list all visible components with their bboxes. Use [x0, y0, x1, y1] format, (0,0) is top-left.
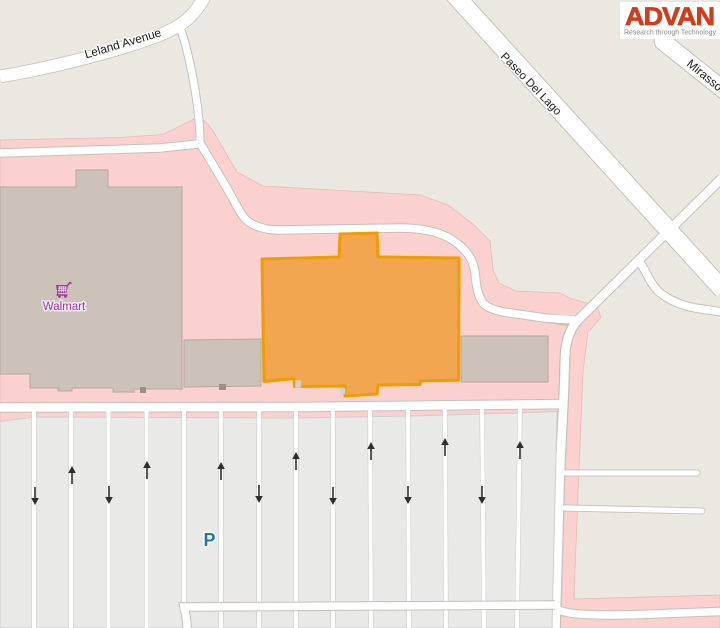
svg-text:Walmart: Walmart: [43, 301, 86, 313]
svg-text:P: P: [204, 530, 216, 550]
svg-text:Research through Technology: Research through Technology: [624, 28, 716, 37]
